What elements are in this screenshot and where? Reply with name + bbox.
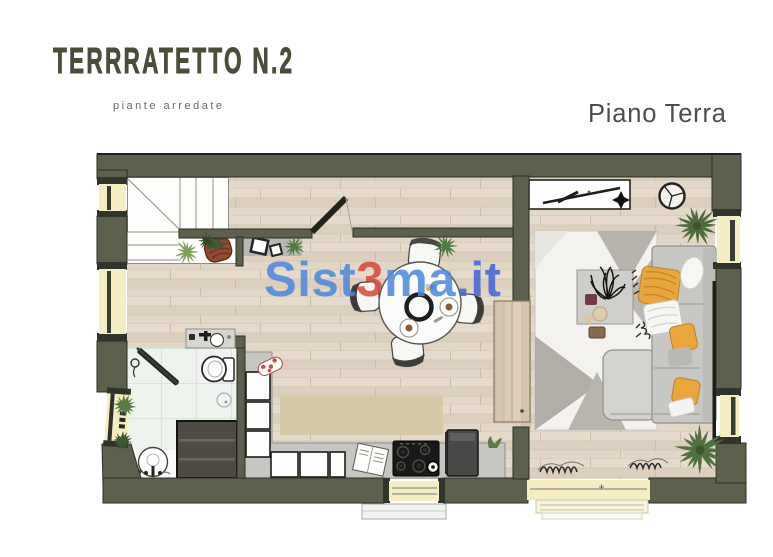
- svg-text:piante arredate: piante arredate: [113, 100, 225, 112]
- svg-text:TERRRATETTO N.2: TERRRATETTO N.2: [53, 42, 294, 82]
- svg-text:Sist3ma.it: Sist3ma.it: [264, 253, 502, 307]
- svg-text:Piano Terra: Piano Terra: [588, 100, 727, 128]
